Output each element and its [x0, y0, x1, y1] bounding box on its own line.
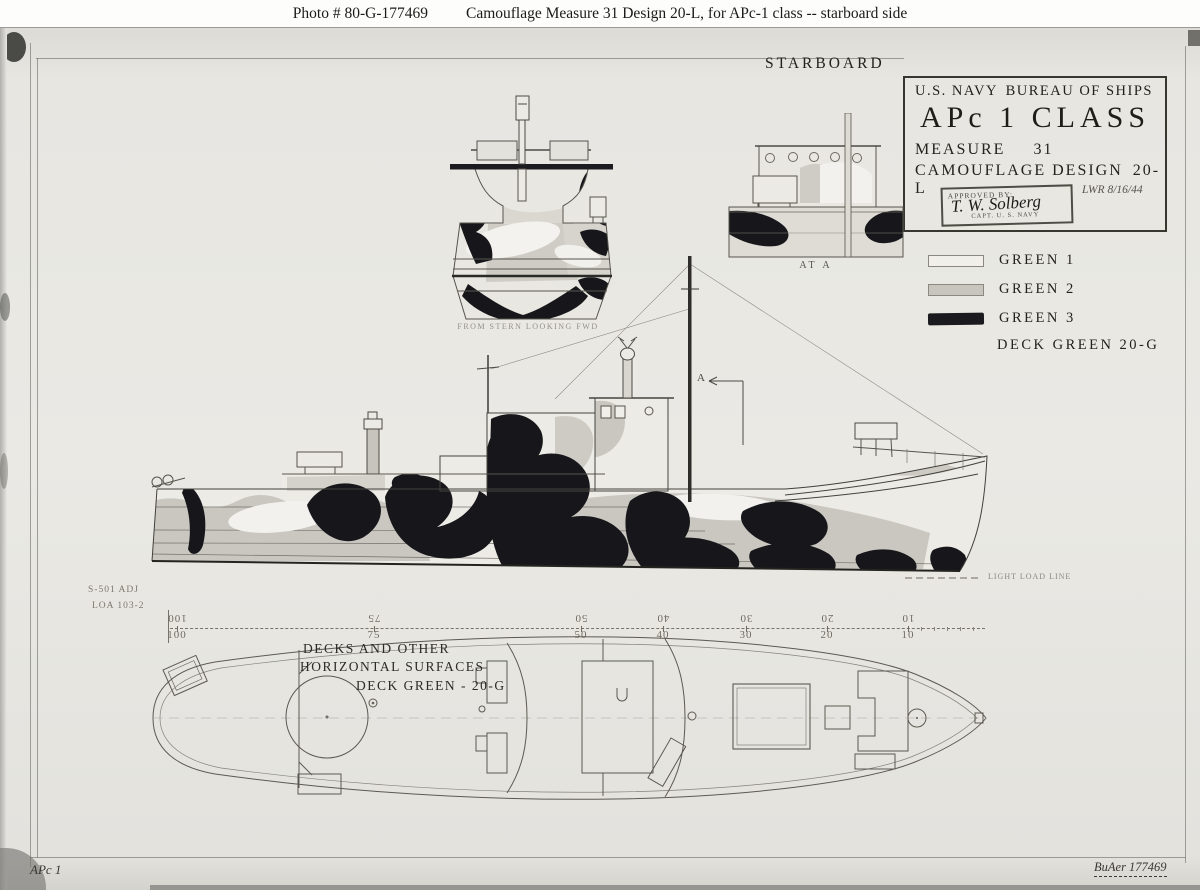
scale-note-bottom: LOA 103-2 — [92, 601, 145, 611]
stern-box-right — [550, 141, 588, 160]
stern-mast — [519, 120, 525, 164]
photo-bottom-shadow — [150, 885, 1200, 890]
plan-note-line1: DECKS AND OTHER — [303, 641, 450, 657]
starboard-label: STARBOARD — [765, 55, 885, 73]
main-mast — [688, 256, 692, 502]
waterline-label: LIGHT LOAD LINE — [988, 572, 1071, 581]
sheet-border-left-outer — [30, 43, 31, 867]
deck-plan-drawing — [145, 626, 995, 846]
photo-id: Photo # 80-G-177469 — [293, 5, 428, 23]
title-bureau: BUREAU OF SHIPS — [1006, 83, 1153, 100]
archival-photo-page: Photo # 80-G-177469 Camouflage Measure 3… — [0, 0, 1200, 890]
sheet-border-bottom — [30, 857, 1186, 858]
plan-note-line2: HORIZONTAL SURFACES — [300, 659, 485, 675]
photo-blemish — [0, 293, 10, 321]
footer-class-mark: APc 1 — [30, 862, 61, 878]
stack — [367, 427, 379, 474]
station-number-inverted: 75 — [356, 612, 392, 624]
masthead-horn — [618, 337, 637, 348]
stern-masthead — [516, 96, 529, 120]
plan-note-line3: DECK GREEN - 20-G — [356, 678, 506, 694]
measure-value: 31 — [1033, 141, 1053, 158]
plan-cargo-hatch — [733, 684, 810, 749]
plan-stern-hatch — [163, 655, 207, 695]
title-ship-class: APc 1 CLASS — [905, 101, 1165, 135]
wheelhouse-window — [601, 406, 611, 418]
station-number-inverted: 100 — [159, 612, 195, 624]
vent-box — [297, 452, 342, 467]
stack-cap — [364, 419, 382, 429]
section-marker-label: A — [697, 372, 705, 384]
wheelhouse-window — [615, 406, 625, 418]
title-agency: U.S. NAVY — [915, 83, 998, 100]
stamp-rank: CAPT. U. S. NAVY — [971, 211, 1039, 220]
section-box — [753, 176, 797, 203]
stern-mast-lower — [518, 169, 526, 201]
title-block: U.S. NAVY BUREAU OF SHIPS APc 1 CLASS ME… — [903, 76, 1167, 232]
drawing-sheet-photo: STARBOARD U.S. NAVY BUREAU OF SHIPS APc … — [0, 27, 1200, 890]
bow-platform — [855, 423, 897, 439]
green2-label: GREEN 2 — [999, 281, 1076, 298]
photo-blemish — [1188, 30, 1200, 46]
date-note: LWR 8/16/44 — [1082, 184, 1143, 196]
pilothouse-stack — [623, 357, 632, 398]
section-view-drawing — [700, 113, 910, 259]
stern-winch — [152, 475, 185, 487]
footer-buaer-number: BuAer 177469 — [1094, 860, 1167, 877]
green1-label: GREEN 1 — [999, 252, 1076, 269]
station-number-inverted: 40 — [645, 612, 681, 624]
profile-view-drawing — [85, 249, 1005, 579]
stack-dome — [621, 348, 635, 360]
stern-cap-bar — [450, 164, 613, 170]
measure-label: MEASURE — [915, 141, 1005, 158]
plan-small-hatch — [825, 706, 850, 729]
sheet-border-left-inner — [37, 58, 38, 858]
plan-fwd-rect — [855, 754, 895, 769]
station-number-inverted: 10 — [890, 612, 926, 624]
sheet-border-right — [1185, 46, 1186, 863]
windlass-symbol — [617, 688, 627, 701]
design-label: CAMOUFLAGE DESIGN — [915, 162, 1123, 179]
stern-box-left — [477, 141, 517, 160]
section-marker-arrow — [709, 377, 743, 445]
bow-rail — [853, 447, 985, 457]
plan-wheelhouse — [582, 639, 653, 796]
photo-caption: Photo # 80-G-177469 Camouflage Measure 3… — [0, 0, 1200, 27]
station-number-inverted: 20 — [809, 612, 845, 624]
green3-label: GREEN 3 — [999, 310, 1076, 327]
photo-blemish — [0, 453, 8, 489]
deck-green-label: DECK GREEN 20-G — [997, 337, 1178, 354]
scale-note-top: S-501 ADJ — [88, 585, 139, 595]
stern-side-box — [590, 197, 606, 217]
section-mast — [845, 113, 851, 257]
station-number-inverted: 50 — [563, 612, 599, 624]
plan-small-circle — [688, 712, 696, 720]
profile-camouflage — [85, 249, 1005, 579]
photo-title: Camouflage Measure 31 Design 20-L, for A… — [466, 5, 907, 23]
station-number-inverted: 30 — [728, 612, 764, 624]
plan-engine-casing — [858, 671, 908, 751]
approval-stamp: APPROVED BY: T. W. Solberg CAPT. U. S. N… — [941, 184, 1074, 226]
